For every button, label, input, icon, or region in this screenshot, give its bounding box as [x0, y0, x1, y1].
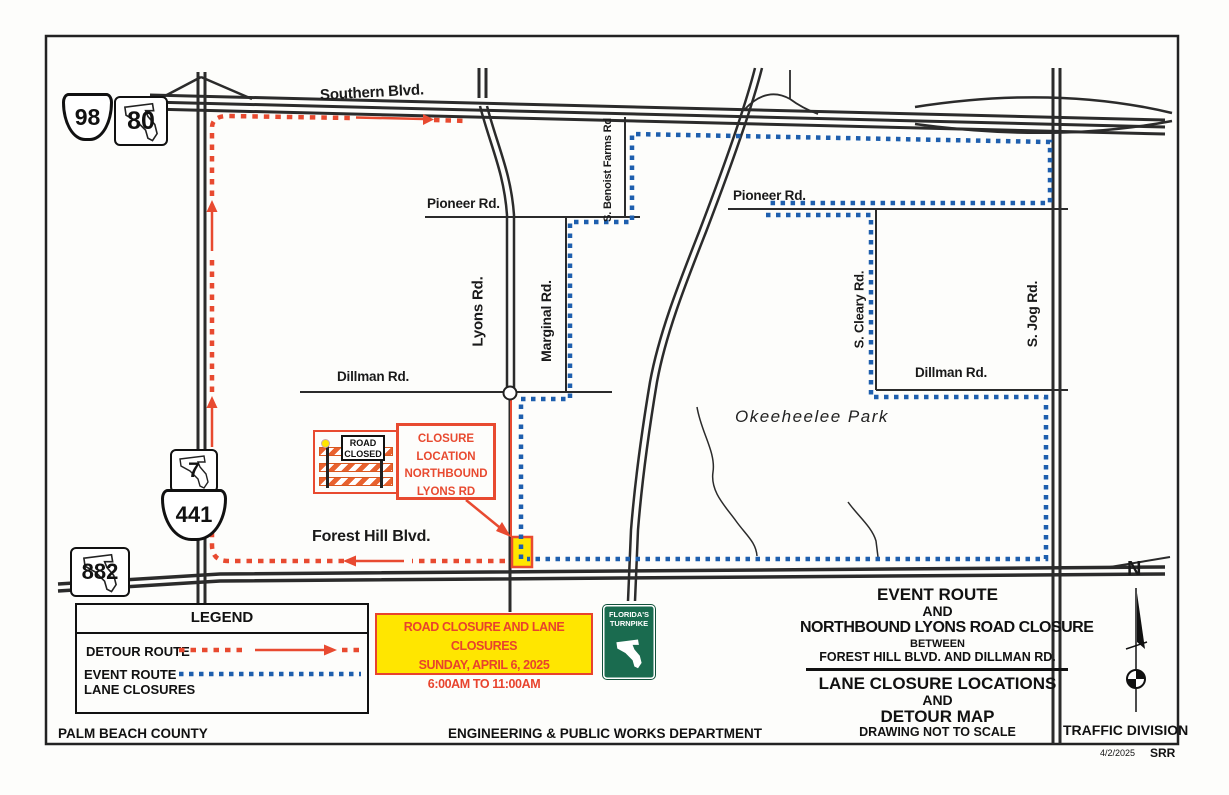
- footer-department: ENGINEERING & PUBLIC WORKS DEPARTMENT: [420, 726, 790, 741]
- north-label: N: [1127, 558, 1141, 581]
- park-label: Okeeheelee Park: [735, 407, 889, 427]
- legend-title: LEGEND: [77, 609, 367, 626]
- us98-number: 98: [75, 104, 101, 131]
- florida-silhouette-icon: [611, 633, 647, 673]
- title-line-6: LANE CLOSURE LOCATIONS: [800, 674, 1075, 694]
- florida-turnpike-sign: FLORIDA'S TURNPIKE: [603, 605, 655, 679]
- us441-number: 441: [176, 502, 213, 528]
- north-arrow: [1126, 588, 1147, 712]
- legend-detour-label: DETOUR ROUTE: [86, 645, 190, 659]
- title-line-2: AND: [800, 603, 1075, 619]
- footer-initials: SRR: [1150, 746, 1175, 760]
- road-label-jog: S. Jog Rd.: [1024, 269, 1040, 359]
- callout-line1: CLOSURE: [399, 431, 493, 449]
- title-line-7: AND: [800, 692, 1075, 708]
- road-label-dillman-west: Dillman Rd.: [337, 369, 409, 384]
- legend-box: LEGEND DETOUR ROUTE EVENT ROUTE LANE CLO…: [75, 603, 369, 714]
- title-line-8: DETOUR MAP: [800, 707, 1075, 727]
- road-label-benoist: S. Benoist Farms Rd: [602, 115, 614, 225]
- junction-marker: [504, 387, 517, 400]
- closure-announcement-box: ROAD CLOSURE AND LANE CLOSURES SUNDAY, A…: [375, 613, 593, 675]
- callout-line2: LOCATION: [399, 449, 493, 467]
- title-line-3: NORTHBOUND LYONS ROAD CLOSURE: [800, 619, 1075, 637]
- closure-segment-highlight: [512, 537, 532, 567]
- road-label-pioneer-west: Pioneer Rd.: [427, 196, 500, 211]
- closure-location-callout: CLOSURE LOCATION NORTHBOUND LYONS RD: [396, 423, 496, 500]
- legend-detour-sample: [177, 643, 363, 657]
- road-label-pioneer-east: Pioneer Rd.: [733, 188, 806, 203]
- detour-map-page: Southern Blvd. Pioneer Rd. Pioneer Rd. D…: [0, 0, 1229, 795]
- road-closed-graphic: ROAD CLOSED: [313, 430, 401, 494]
- announcement-line2: SUNDAY, APRIL 6, 2025: [377, 656, 591, 675]
- title-block-rule: [806, 668, 1068, 671]
- barricade-post: [326, 444, 329, 488]
- title-line-1: EVENT ROUTE: [800, 585, 1075, 605]
- title-line-4: BETWEEN: [800, 638, 1075, 650]
- turnpike-line2: TURNPIKE: [603, 619, 655, 628]
- sr80-number: 80: [127, 107, 155, 136]
- legend-event-sample: [177, 667, 363, 681]
- road-label-forest-hill: Forest Hill Blvd.: [312, 528, 430, 546]
- road-closed-line2: CLOSED: [343, 449, 383, 460]
- footer-date: 4/2/2025: [1100, 748, 1135, 758]
- road-label-lyons: Lyons Rd.: [470, 272, 487, 352]
- turnpike-line1: FLORIDA'S: [603, 610, 655, 619]
- announcement-line3: 6:00AM TO 11:00AM: [377, 675, 591, 694]
- road-closed-line1: ROAD: [343, 438, 383, 449]
- announcement-line1: ROAD CLOSURE AND LANE CLOSURES: [377, 618, 591, 656]
- title-line-9: DRAWING NOT TO SCALE: [800, 725, 1075, 739]
- legend-event-label-line1: EVENT ROUTE: [84, 668, 176, 682]
- sr80-shield: 80: [114, 96, 168, 146]
- sr882-shield: 882: [70, 547, 130, 597]
- callout-line3: NORTHBOUND: [399, 466, 493, 484]
- legend-event-label-line2: LANE CLOSURES: [84, 683, 195, 697]
- road-label-dillman-east: Dillman Rd.: [915, 365, 987, 380]
- footer-division: TRAFFIC DIVISION: [1063, 722, 1188, 738]
- warning-light-icon: [321, 439, 330, 448]
- road-label-cleary: S. Cleary Rd.: [852, 260, 867, 360]
- title-line-5: FOREST HILL BLVD. AND DILLMAN RD.: [800, 650, 1075, 664]
- legend-divider: [77, 632, 367, 634]
- road-label-marginal: Marginal Rd.: [538, 271, 554, 371]
- sr7-number: 7: [188, 459, 200, 483]
- sr882-number: 882: [82, 559, 119, 585]
- callout-line4: LYONS RD: [399, 484, 493, 502]
- sr7-shield: 7: [170, 449, 218, 493]
- road-closed-sign: ROAD CLOSED: [341, 435, 385, 461]
- footer-county: PALM BEACH COUNTY: [58, 726, 208, 741]
